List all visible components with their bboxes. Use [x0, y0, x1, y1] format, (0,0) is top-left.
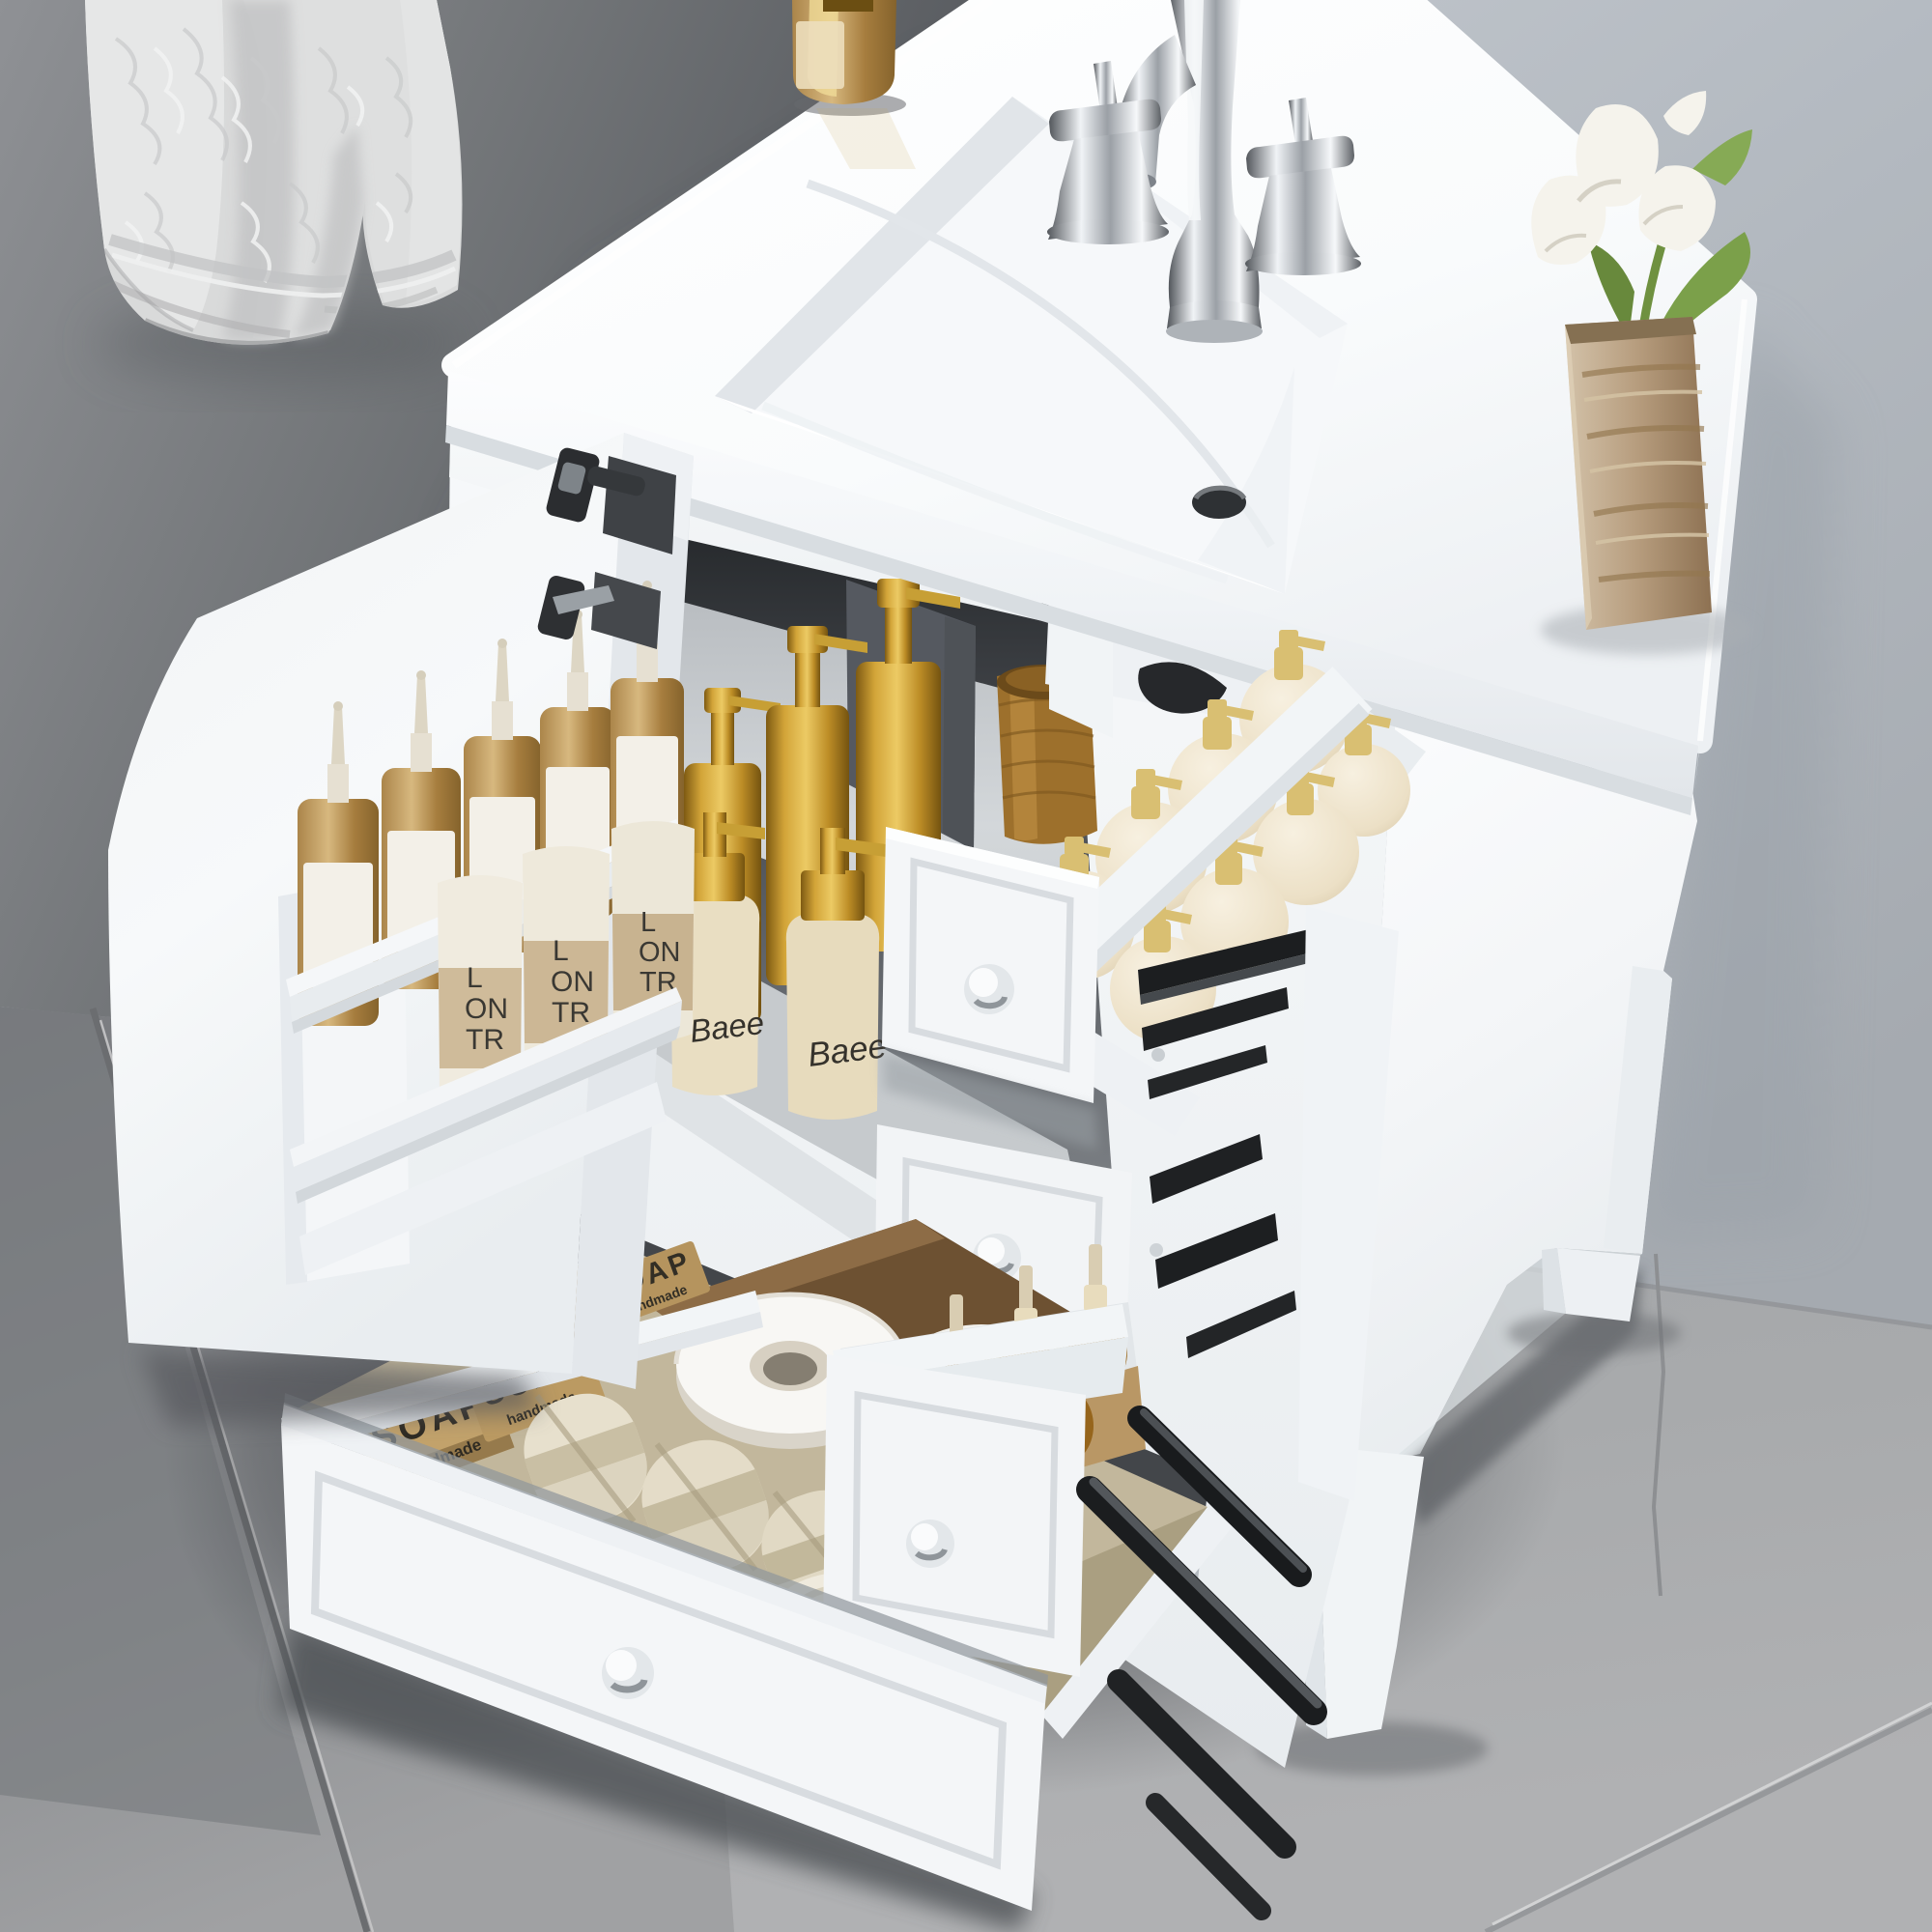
svg-text:L: L: [467, 962, 483, 994]
svg-text:L: L: [553, 935, 569, 967]
svg-text:TR: TR: [552, 997, 590, 1029]
svg-text:ON: ON: [639, 937, 681, 968]
svg-text:L: L: [640, 907, 656, 938]
svg-text:TR: TR: [466, 1024, 504, 1056]
svg-text:ON: ON: [551, 966, 594, 998]
svg-text:ON: ON: [465, 993, 508, 1025]
